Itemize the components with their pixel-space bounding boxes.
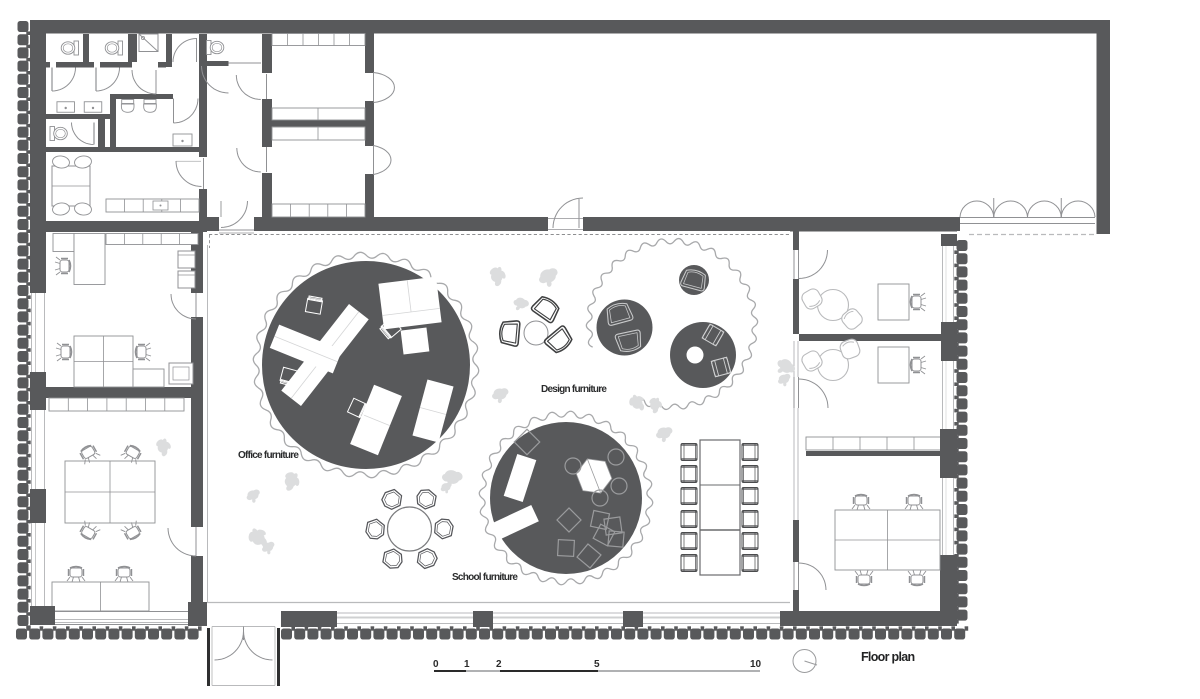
svg-text:10: 10 [750,659,762,670]
svg-text:Design furniture: Design furniture [541,384,607,395]
svg-text:Floor plan: Floor plan [861,650,914,664]
svg-text:2: 2 [496,659,502,670]
svg-text:Office furniture: Office furniture [238,450,299,461]
svg-text:0: 0 [433,659,439,670]
svg-text:School furniture: School furniture [452,572,518,583]
svg-text:1: 1 [464,659,470,670]
svg-text:5: 5 [594,659,600,670]
